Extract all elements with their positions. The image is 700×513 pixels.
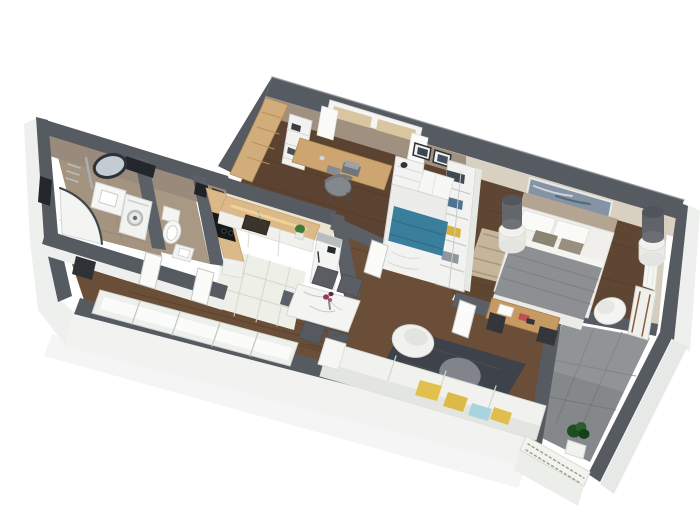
led-dot-1: [234, 205, 237, 208]
lamp-right-base: [642, 231, 664, 243]
burner-3: [222, 229, 226, 233]
lamp-left-top: [502, 195, 522, 206]
floor-plan: [0, 0, 700, 513]
bedroom2-desk-cup: [319, 156, 324, 160]
led-dot-4: [282, 220, 285, 223]
nightstand-right-base: [639, 252, 665, 267]
table-flowers-1: [323, 294, 329, 299]
lamp-left-base: [502, 219, 522, 230]
fridge-handle: [318, 252, 319, 262]
balcony-plant-foliage-3: [579, 429, 590, 439]
lamp-right-top: [642, 206, 664, 218]
floor-plan-svg: [0, 0, 700, 513]
led-dot-3: [266, 215, 269, 218]
window-niche-left-wall: [38, 176, 52, 206]
washer-knob: [133, 216, 137, 220]
table-vase: [329, 302, 330, 309]
led-dot-2: [250, 210, 253, 213]
table-flowers-2: [328, 292, 333, 296]
kitchen-counter-left-front: [222, 258, 244, 278]
bedroom2-table-lamp: [401, 162, 408, 168]
burner-4: [229, 231, 233, 235]
nightstand-left-base: [499, 239, 525, 254]
